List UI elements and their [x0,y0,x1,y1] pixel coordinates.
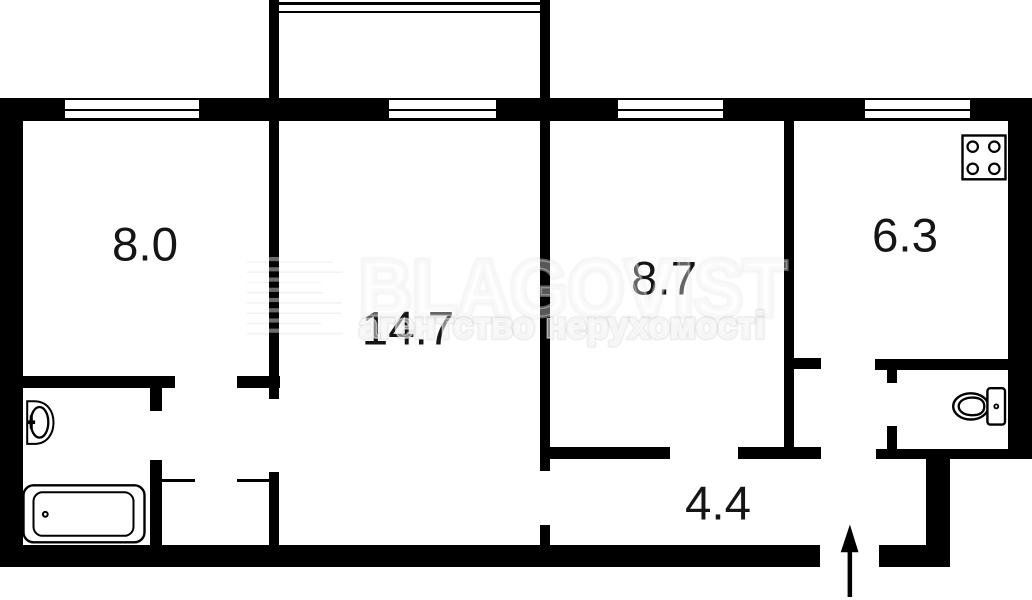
svg-text:агентство нерухомості: агентство нерухомості [359,305,765,346]
